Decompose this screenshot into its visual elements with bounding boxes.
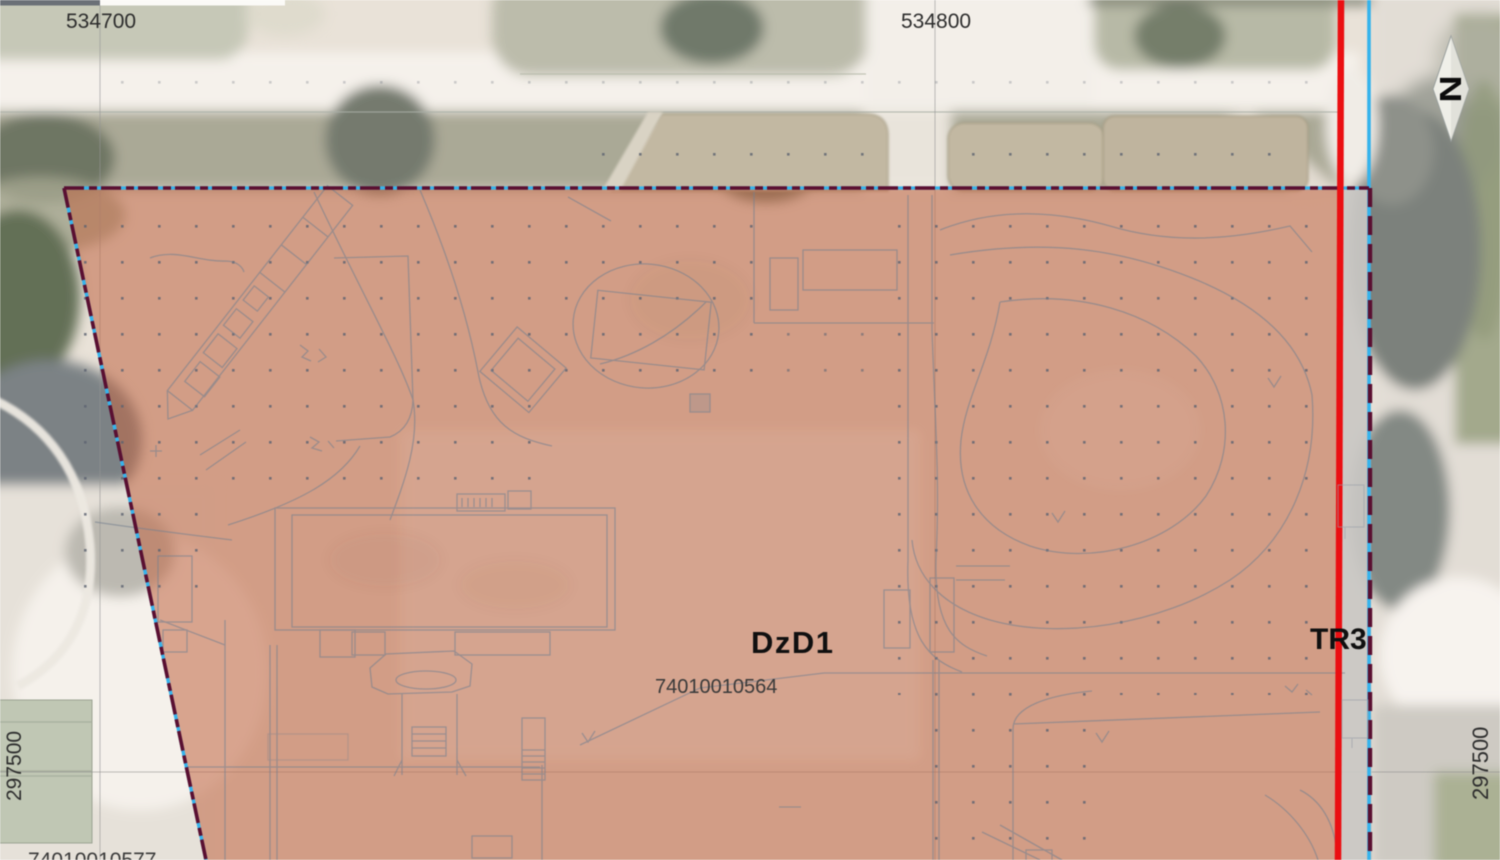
svg-text:534700: 534700	[66, 10, 136, 33]
svg-text:TR3: TR3	[1310, 623, 1367, 656]
svg-text:74010010564: 74010010564	[655, 676, 777, 698]
svg-text:74010010577: 74010010577	[28, 849, 156, 860]
svg-text:297500: 297500	[3, 731, 26, 801]
svg-text:534800: 534800	[901, 10, 971, 33]
svg-text:N: N	[1433, 75, 1467, 102]
svg-text:297500: 297500	[1468, 727, 1493, 800]
svg-text:DzD1: DzD1	[751, 625, 835, 660]
